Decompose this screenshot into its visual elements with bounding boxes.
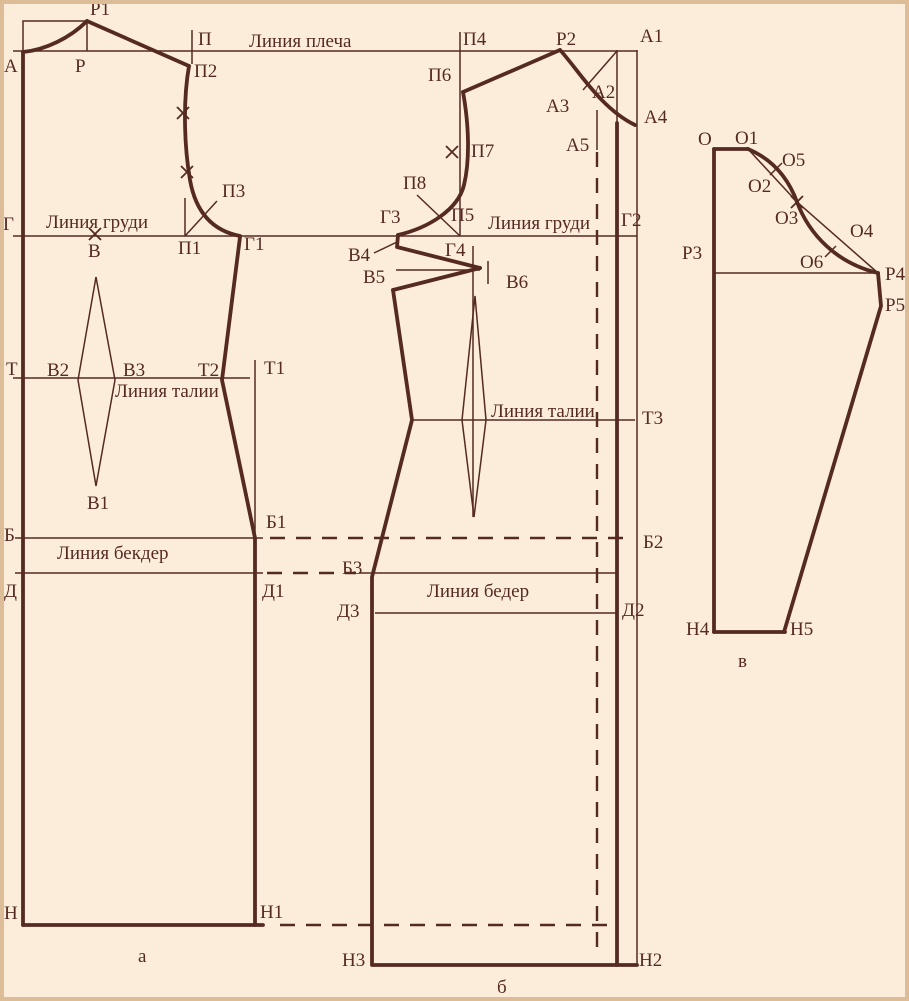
front-shoulder-seam — [463, 50, 560, 92]
point-label-g1: Г1 — [244, 234, 264, 255]
point-label-a4: А4 — [644, 107, 668, 128]
front-waist-dart — [462, 296, 486, 517]
back-side-seam — [222, 237, 255, 538]
point-label-v4: В4 — [348, 245, 371, 266]
point-label-p6: П6 — [428, 65, 451, 86]
point-label-r3: Р3 — [682, 243, 702, 264]
point-label-v: В — [88, 241, 101, 262]
point-label-p5: П5 — [451, 205, 474, 226]
point-label-o1: О1 — [735, 128, 758, 149]
point-label-o3: О3 — [775, 208, 798, 229]
notch-front-armhole — [446, 146, 458, 158]
point-label-p1: П1 — [178, 238, 201, 259]
point-label-a3: А3 — [546, 96, 569, 117]
point-label-a: А — [4, 56, 18, 77]
point-label-o6: О6 — [800, 252, 823, 273]
point-label-r5: Р5 — [885, 295, 905, 316]
point-label-g3: Г3 — [380, 207, 400, 228]
point-label-r4: Р4 — [885, 264, 906, 285]
point-label-n1: Н1 — [260, 902, 283, 923]
point-label-o5: О5 — [782, 150, 805, 171]
figure-captions: абв — [138, 651, 747, 998]
point-label-d1: Д1 — [262, 581, 284, 602]
v4-tick — [374, 242, 397, 253]
shoulder-line-label: Линия плеча — [249, 31, 352, 52]
notch-marks — [89, 107, 803, 240]
notch-back-armhole-upper — [177, 107, 189, 119]
point-label-t2: Т2 — [198, 360, 219, 381]
point-label-n2: Н2 — [639, 950, 662, 971]
point-label-n5: Н5 — [790, 619, 813, 640]
point-label-b1: Б1 — [266, 512, 286, 533]
point-label-o4: О4 — [850, 221, 874, 242]
waist-line-label-back: Линия талии — [115, 381, 219, 402]
p3-bisector — [185, 201, 217, 236]
point-label-v3: В3 — [123, 360, 145, 381]
point-label-g2: Г2 — [621, 210, 641, 231]
chest-line-label-back: Линия груди — [46, 212, 148, 233]
back-waist-dart — [78, 277, 115, 486]
point-label-v6: В6 — [506, 272, 528, 293]
point-label-d2: Д2 — [622, 600, 644, 621]
hip-line-label-front: Линия бедер — [427, 581, 529, 602]
point-label-b2: Б2 — [643, 532, 663, 553]
caption-piece-v: в — [738, 651, 747, 672]
chest-line-label-front: Линия груди — [488, 213, 590, 234]
point-label-t1: Т1 — [264, 358, 285, 379]
point-label-v1: В1 — [87, 493, 109, 514]
pattern-diagram: Р1АРПП2П3П1ГВГ1ТВ2В3Т2Т1В1ББ1ДД1НН1П4Р2А… — [0, 0, 909, 1001]
point-label-b: Б — [4, 525, 15, 546]
point-label-a2: А2 — [592, 82, 615, 103]
point-label-t3: Т3 — [642, 408, 663, 429]
guide-line-labels: Линия плечаЛиния грудиЛиния грудиЛиния т… — [46, 31, 595, 602]
point-label-n: Н — [4, 903, 18, 924]
construction-lines — [13, 21, 878, 965]
back-shoulder-seam — [87, 21, 189, 66]
point-label-p2: П2 — [194, 61, 217, 82]
hip-line-label-back: Линия бекдер — [57, 543, 169, 564]
sleeve-right-edge — [784, 273, 881, 632]
caption-piece-b: б — [497, 977, 507, 998]
point-label-n3: Н3 — [342, 950, 365, 971]
point-label-r1: Р1 — [90, 0, 110, 20]
point-label-a1: А1 — [640, 26, 663, 47]
point-label-t: Т — [6, 359, 18, 380]
pattern-outlines — [23, 21, 881, 965]
point-label-p8: П8 — [403, 173, 426, 194]
bust-dart-upper-leg — [397, 235, 480, 268]
point-label-r: Р — [75, 56, 86, 77]
point-label-n4: Н4 — [686, 619, 710, 640]
back-neck-box — [23, 21, 87, 51]
point-label-d3: Д3 — [337, 601, 359, 622]
caption-piece-a: а — [138, 946, 147, 967]
point-label-p4: П4 — [463, 29, 487, 50]
point-label-o: О — [698, 129, 712, 150]
point-label-r2: Р2 — [556, 29, 576, 50]
point-label-v5: В5 — [363, 267, 385, 288]
bust-dart-lower-leg — [393, 268, 480, 290]
point-label-b3: Б3 — [342, 558, 362, 579]
point-label-o2: О2 — [748, 176, 771, 197]
dashed-guides — [267, 152, 633, 958]
back-neck-curve — [23, 21, 87, 52]
point-labels: Р1АРПП2П3П1ГВГ1ТВ2В3Т2Т1В1ББ1ДД1НН1П4Р2А… — [3, 0, 906, 971]
waist-line-label-front: Линия талии — [491, 401, 595, 422]
point-label-d: Д — [4, 581, 17, 602]
front-side-seam — [372, 290, 412, 965]
point-label-g: Г — [3, 214, 14, 235]
point-label-v2: В2 — [47, 360, 69, 381]
point-label-p7: П7 — [471, 141, 494, 162]
point-label-p: П — [198, 29, 212, 50]
point-label-p3: П3 — [222, 181, 245, 202]
point-label-a5: А5 — [566, 135, 589, 156]
pattern-sheet: Р1АРПП2П3П1ГВГ1ТВ2В3Т2Т1В1ББ1ДД1НН1П4Р2А… — [0, 0, 909, 1001]
back-armhole-curve — [185, 66, 240, 236]
point-label-g4: Г4 — [445, 240, 466, 261]
